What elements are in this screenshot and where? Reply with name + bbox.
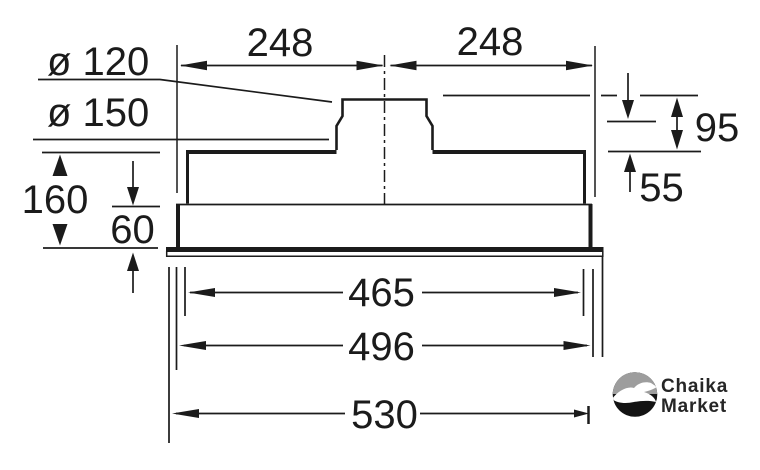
dim-top-widths: 248 248: [177, 20, 595, 197]
arrowhead-up: [127, 253, 139, 272]
seagull-logo-icon: [611, 371, 659, 419]
arrowhead-right: [357, 61, 384, 71]
dim-label-530: 530: [351, 393, 418, 437]
chaika-market-logo: Chaika Market: [611, 371, 728, 419]
arrowhead-down: [671, 130, 683, 150]
extension-lines-left: [169, 267, 185, 443]
dim-label-60: 60: [110, 208, 155, 252]
arrowhead-up: [53, 155, 68, 177]
dimension-drawing-page: 248 248 ø 120 ø 150 160 60 95 55: [0, 0, 760, 470]
dim-label-95: 95: [695, 106, 740, 150]
extension-lines-right: [584, 257, 603, 357]
arrowhead-right: [564, 341, 591, 350]
hood-outline: [166, 55, 604, 256]
arrowhead-left: [179, 341, 206, 350]
arrowhead-left: [188, 288, 215, 297]
dim-left-heights: 160 60: [22, 153, 160, 294]
dim-label-465: 465: [348, 271, 415, 315]
dim-label-160: 160: [22, 178, 89, 222]
arrowhead-down: [53, 224, 68, 246]
dim-label-496: 496: [348, 325, 415, 369]
logo-text-line1: Chaika: [661, 376, 728, 397]
arrowhead-down: [622, 100, 634, 119]
upper-body-sides: [188, 151, 585, 204]
arrowhead-right: [574, 410, 589, 418]
arrowhead-down: [127, 187, 139, 206]
arrowhead-left: [180, 61, 207, 71]
arrowhead-left: [390, 61, 417, 71]
lower-body-sides: [178, 204, 591, 247]
dim-label-55: 55: [639, 166, 684, 210]
arrowhead-up: [624, 154, 636, 173]
hood-dimension-drawing: 248 248 ø 120 ø 150 160 60 95 55: [0, 0, 760, 470]
dim-label-248-right: 248: [457, 20, 524, 64]
arrowhead-left: [172, 409, 199, 418]
logo-text-line2: Market: [661, 396, 727, 417]
dim-bottom-widths: 465 496 530: [169, 257, 603, 443]
arrowhead-up: [671, 98, 683, 118]
dim-label-dia-120: ø 120: [47, 40, 149, 84]
arrowhead-right: [554, 288, 581, 297]
arrowhead-right: [566, 61, 593, 71]
dim-label-248-left: 248: [247, 21, 314, 65]
dim-label-dia-150: ø 150: [47, 91, 149, 135]
dim-right-heights: 95 55: [443, 73, 739, 210]
